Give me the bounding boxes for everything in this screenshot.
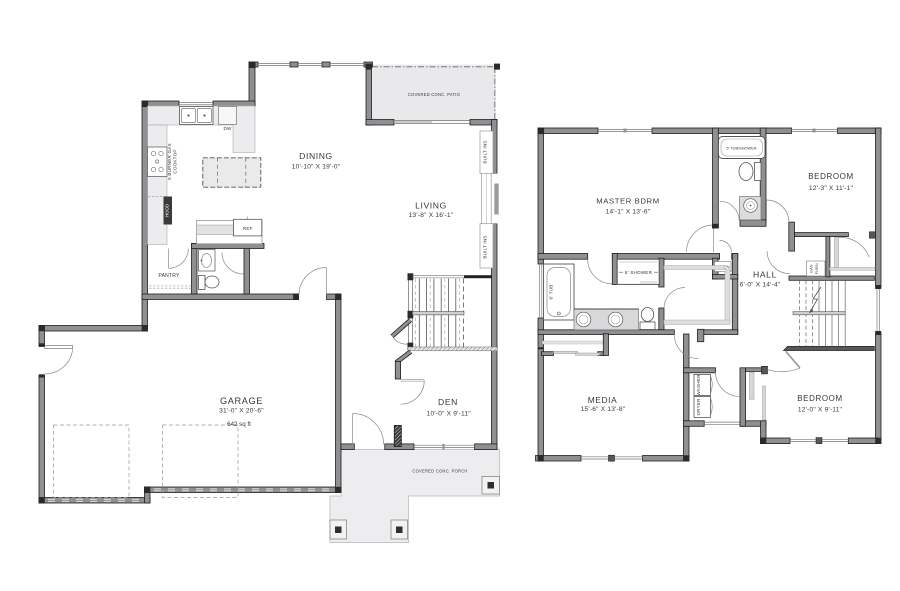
svg-text:6'-0" X 14'-4": 6'-0" X 14'-4" bbox=[740, 282, 781, 289]
svg-text:GAS: GAS bbox=[809, 264, 814, 273]
svg-text:5 BURNER GAS: 5 BURNER GAS bbox=[167, 143, 172, 180]
svg-text:10'-10" X 19'-0": 10'-10" X 19'-0" bbox=[292, 163, 341, 170]
svg-text:5' SHOWER: 5' SHOWER bbox=[625, 270, 653, 275]
svg-text:BUILT INS: BUILT INS bbox=[483, 235, 488, 258]
svg-text:15'-6" X 13'-8": 15'-6" X 13'-8" bbox=[581, 406, 626, 413]
svg-text:12'-0" X 9'-11": 12'-0" X 9'-11" bbox=[798, 407, 843, 414]
svg-text:LIVING: LIVING bbox=[415, 201, 447, 211]
svg-text:HOOD: HOOD bbox=[165, 204, 170, 217]
svg-text:BEDROOM: BEDROOM bbox=[797, 394, 843, 403]
svg-text:BUILT INS: BUILT INS bbox=[483, 140, 488, 163]
svg-text:MEDIA: MEDIA bbox=[588, 395, 618, 405]
svg-text:13'-8" X 16'-1": 13'-8" X 16'-1" bbox=[409, 212, 454, 219]
svg-text:DEN: DEN bbox=[438, 397, 458, 407]
svg-text:5' TUB/SHOWER: 5' TUB/SHOWER bbox=[726, 145, 756, 150]
svg-text:PANTRY: PANTRY bbox=[158, 273, 179, 279]
svg-text:COVERED CONC. PORCH: COVERED CONC. PORCH bbox=[412, 469, 467, 474]
svg-text:DW: DW bbox=[223, 126, 232, 131]
svg-text:COOKTOP: COOKTOP bbox=[173, 149, 178, 173]
svg-text:COVERED CONC. PATIO: COVERED CONC. PATIO bbox=[408, 92, 460, 97]
svg-text:WASHER: WASHER bbox=[696, 374, 701, 396]
svg-text:6' TUB: 6' TUB bbox=[549, 284, 554, 299]
svg-text:DINING: DINING bbox=[299, 151, 333, 161]
svg-text:FURN: FURN bbox=[814, 263, 819, 274]
svg-text:GARAGE: GARAGE bbox=[220, 396, 263, 406]
svg-text:BEDROOM: BEDROOM bbox=[808, 172, 854, 181]
svg-text:12'-3" X 11'-1": 12'-3" X 11'-1" bbox=[809, 185, 854, 192]
svg-text:MASTER BDRM: MASTER BDRM bbox=[596, 197, 659, 206]
svg-text:HALL: HALL bbox=[753, 270, 777, 280]
svg-text:14'-1" X 13'-6": 14'-1" X 13'-6" bbox=[606, 208, 651, 215]
svg-text:DRYER: DRYER bbox=[696, 398, 701, 415]
svg-text:10'-0" X 9'-11": 10'-0" X 9'-11" bbox=[427, 411, 472, 418]
svg-text:REF: REF bbox=[243, 226, 253, 231]
svg-text:642 sq ft: 642 sq ft bbox=[227, 421, 251, 428]
svg-text:31'-0" X 20'-6": 31'-0" X 20'-6" bbox=[219, 407, 264, 414]
